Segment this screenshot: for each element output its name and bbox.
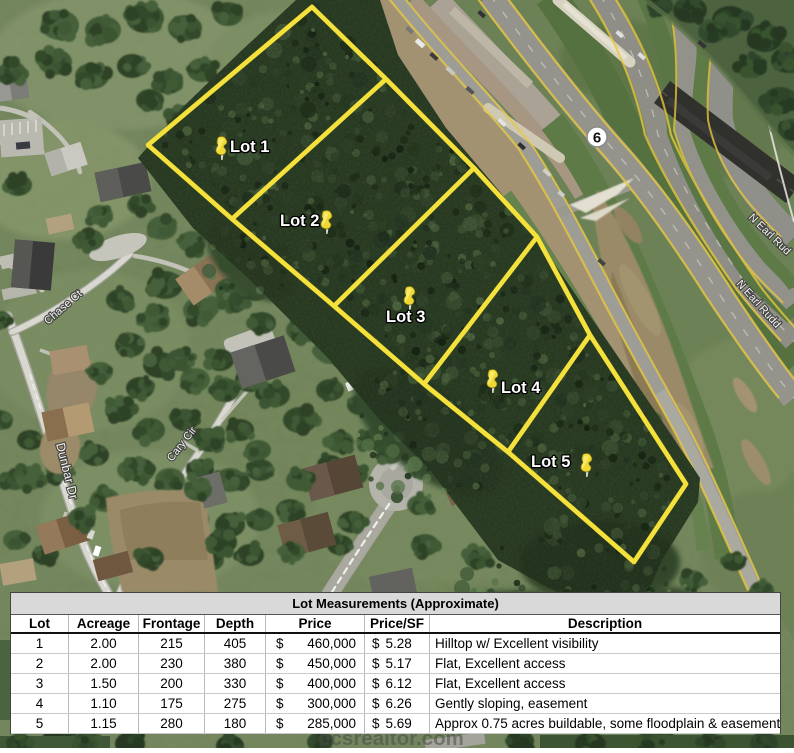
svg-text:Lot 3: Lot 3 xyxy=(386,308,425,326)
svg-text:Lot 2: Lot 2 xyxy=(280,212,319,230)
svg-text:Lot 5: Lot 5 xyxy=(531,453,570,471)
svg-text:Lot 1: Lot 1 xyxy=(230,138,269,156)
svg-text:6: 6 xyxy=(593,130,601,147)
svg-text:Lot 4: Lot 4 xyxy=(501,379,541,397)
